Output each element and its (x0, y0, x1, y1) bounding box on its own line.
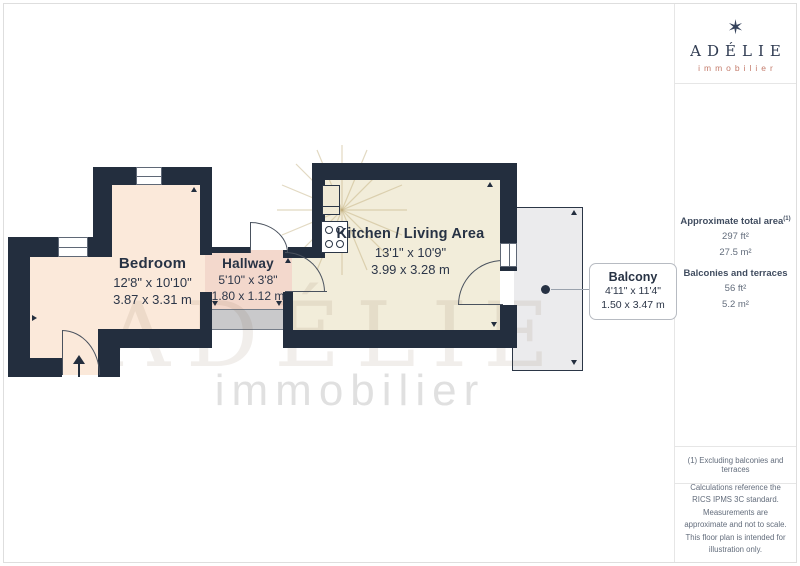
balcony-marker-dot (541, 285, 550, 294)
corner-arrow-mark (571, 360, 577, 365)
footnote-section: (1) Excluding balconies and terraces (675, 446, 796, 484)
brand-name: ADÉLIE (675, 42, 796, 60)
kitchen-counter (322, 185, 340, 215)
total-area-m: 27.5 m² (675, 247, 796, 258)
watermark-subtext: immobilier (130, 366, 570, 416)
brand-logo: ✶ ADÉLIE immobilier (675, 4, 796, 83)
room-dim-ft: 5'10" x 3'8" (192, 273, 304, 289)
star-logo-icon: ✶ (675, 18, 796, 38)
total-area-ft: 297 ft² (675, 231, 796, 242)
wall-segment (93, 185, 112, 237)
wall-segment (30, 358, 62, 377)
wall-segment (8, 257, 30, 377)
corner-arrow-mark (191, 187, 197, 192)
room-name: Hallway (192, 255, 304, 273)
total-area-heading: Approximate total area(1) (675, 216, 796, 227)
room-dim-ft: 4'11" x 11'4" (592, 285, 674, 299)
room-name: Balcony (592, 269, 674, 285)
sidebar-hline (675, 83, 796, 84)
corner-arrow-mark (491, 322, 497, 327)
sidebar: ✶ ADÉLIE immobilier Approximate total ar… (675, 4, 796, 562)
brand-tagline: immobilier (675, 63, 796, 73)
area-summary: Approximate total area(1) 297 ft² 27.5 m… (675, 216, 796, 315)
footnote-ref: (1) (783, 216, 790, 222)
room-dim-m: 3.99 x 3.28 m (318, 261, 503, 278)
wall-segment (312, 163, 517, 180)
room-name: Kitchen / Living Area (318, 225, 503, 244)
room-dim-m: 1.80 x 1.12 m (192, 289, 304, 305)
wall-segment (98, 329, 212, 348)
floorplan-page: ADÉLIE immobilier (0, 0, 800, 566)
hallway-label: Hallway 5'10" x 3'8" 1.80 x 1.12 m (192, 255, 304, 304)
hallway-door-arc (250, 222, 288, 253)
wall-segment (212, 247, 250, 253)
closet-area (207, 309, 290, 330)
wall-segment (200, 167, 212, 255)
room-dim-m: 1.50 x 3.47 m (592, 299, 674, 313)
room-dim-ft: 13'1" x 10'9" (318, 244, 503, 261)
entrance-arrow-head (73, 355, 85, 364)
balcony-leader-line (551, 289, 589, 290)
balcony-area-heading: Balconies and terraces (675, 268, 796, 279)
window (136, 167, 162, 185)
balcony-area-ft: 56 ft² (675, 283, 796, 294)
corner-arrow-mark (571, 210, 577, 215)
corner-arrow-mark (487, 182, 493, 187)
entrance-arrow (78, 363, 80, 377)
wall-segment (283, 330, 517, 348)
balcony-area-m: 5.2 m² (675, 299, 796, 310)
kitchen-label: Kitchen / Living Area 13'1" x 10'9" 3.99… (318, 225, 503, 278)
balcony-label: Balcony 4'11" x 11'4" 1.50 x 3.47 m (589, 263, 677, 320)
disclaimer-text: Calculations reference the RICS IPMS 3C … (682, 482, 789, 557)
corner-arrow-mark (32, 315, 37, 321)
disclaimer-section: Calculations reference the RICS IPMS 3C … (682, 482, 789, 566)
footnote-text: (1) Excluding balconies and terraces (679, 456, 792, 474)
